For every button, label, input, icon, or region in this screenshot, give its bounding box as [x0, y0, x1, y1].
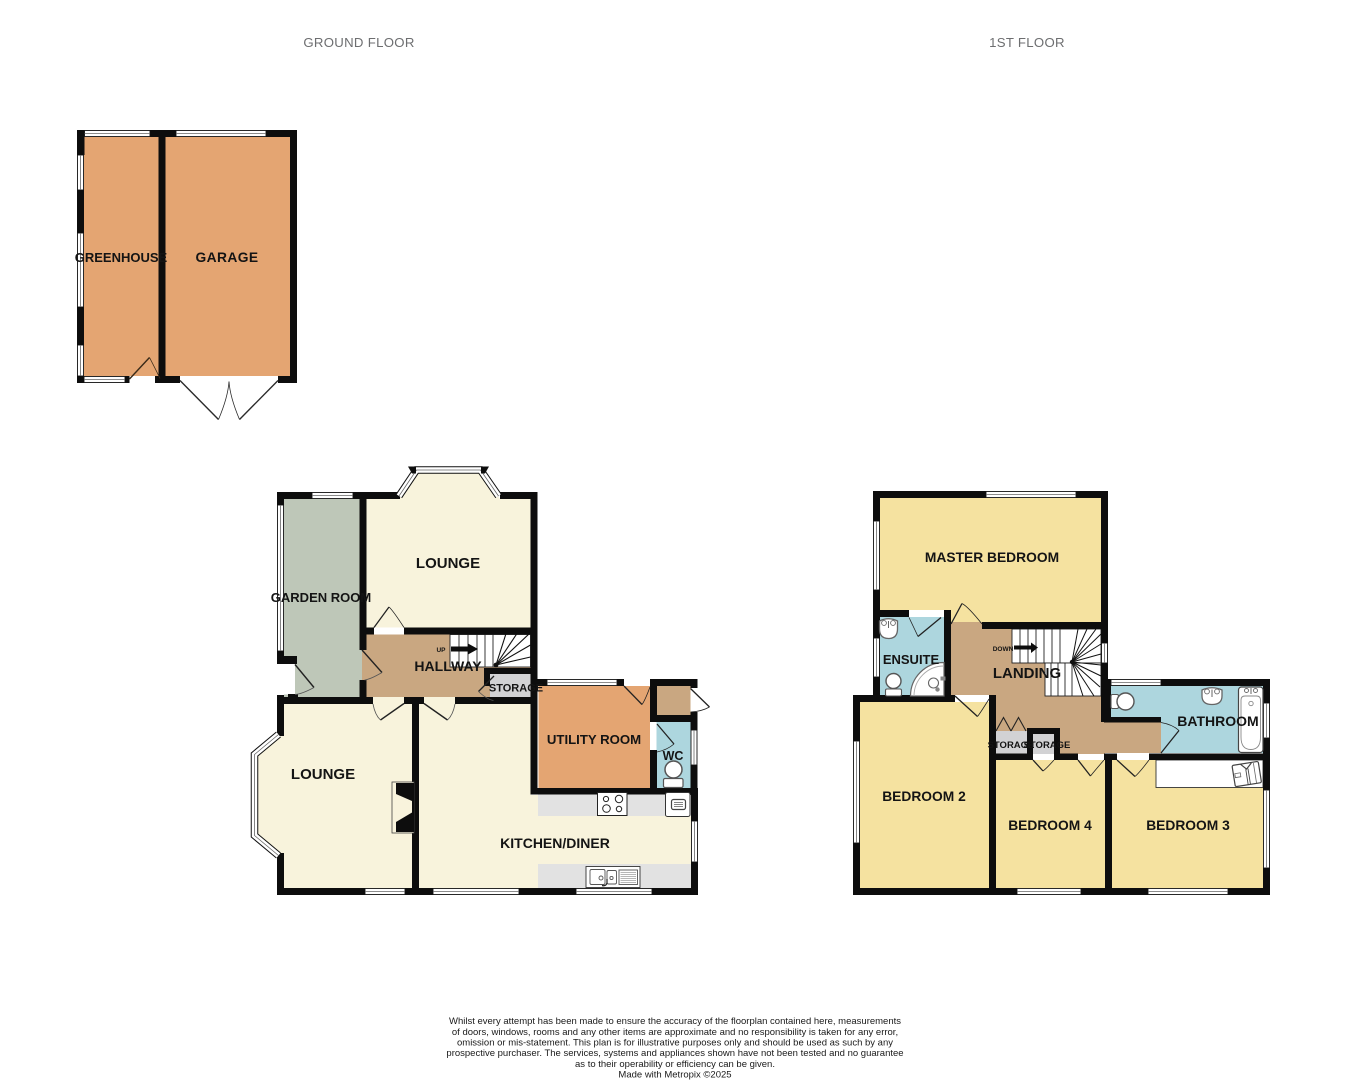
- svg-text:STORAGE: STORAGE: [489, 683, 543, 695]
- svg-text:UTILITY ROOM: UTILITY ROOM: [547, 732, 641, 747]
- svg-text:prospective purchaser. The ser: prospective purchaser. The services, sys…: [446, 1048, 903, 1059]
- svg-text:LANDING: LANDING: [993, 665, 1061, 682]
- svg-text:GARDEN ROOM: GARDEN ROOM: [271, 590, 371, 605]
- svg-text:KITCHEN/DINER: KITCHEN/DINER: [500, 835, 610, 851]
- svg-text:GARAGE: GARAGE: [196, 250, 259, 265]
- svg-text:BEDROOM 2: BEDROOM 2: [882, 789, 966, 804]
- svg-text:of doors, windows, rooms and a: of doors, windows, rooms and any other i…: [452, 1027, 898, 1038]
- svg-text:LOUNGE: LOUNGE: [291, 766, 355, 783]
- svg-text:DOWN: DOWN: [993, 646, 1014, 653]
- svg-text:1ST FLOOR: 1ST FLOOR: [989, 35, 1065, 50]
- svg-text:BEDROOM 4: BEDROOM 4: [1008, 818, 1092, 833]
- svg-text:GROUND FLOOR: GROUND FLOOR: [303, 35, 414, 50]
- svg-text:MASTER BEDROOM: MASTER BEDROOM: [925, 550, 1059, 565]
- svg-text:BEDROOM 3: BEDROOM 3: [1146, 818, 1230, 833]
- svg-text:HALLWAY: HALLWAY: [414, 658, 482, 674]
- svg-text:Whilst every attempt has been: Whilst every attempt has been made to en…: [449, 1016, 901, 1027]
- svg-text:Made with Metropix ©2025: Made with Metropix ©2025: [618, 1070, 731, 1081]
- svg-text:omission or mis-statement. Thi: omission or mis-statement. This plan is …: [457, 1038, 893, 1049]
- svg-text:as to their operability or eff: as to their operability or efficiency ca…: [575, 1059, 775, 1070]
- svg-text:UP: UP: [436, 647, 446, 654]
- svg-text:STORAGE: STORAGE: [1024, 740, 1071, 751]
- svg-text:LOUNGE: LOUNGE: [416, 555, 480, 572]
- svg-text:BATHROOM: BATHROOM: [1177, 713, 1258, 729]
- svg-text:WC: WC: [663, 749, 684, 763]
- svg-text:ENSUITE: ENSUITE: [883, 652, 940, 667]
- svg-text:GREENHOUSE: GREENHOUSE: [75, 250, 168, 265]
